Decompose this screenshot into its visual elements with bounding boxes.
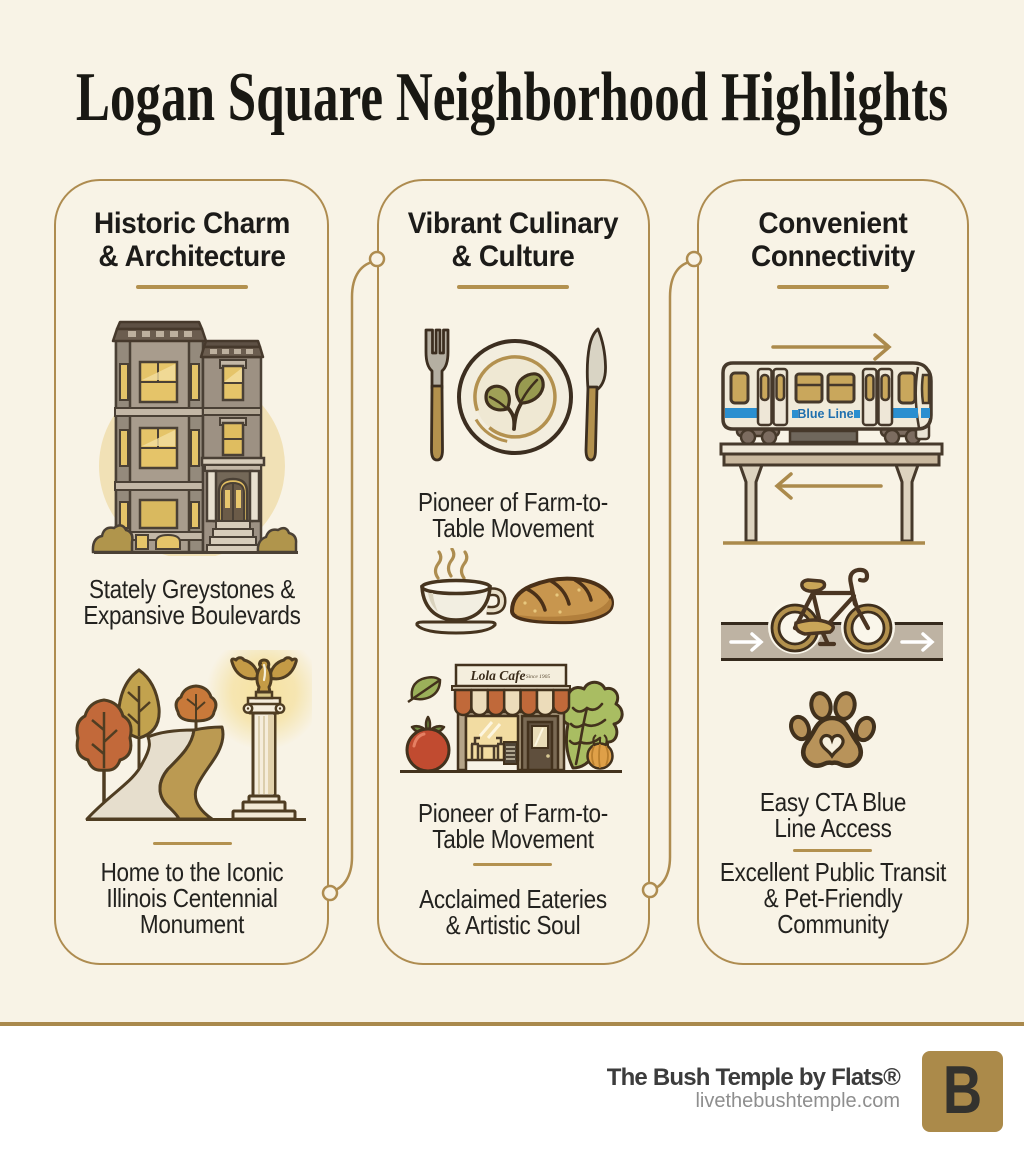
- svg-text:Lola Cafe: Lola Cafe: [469, 668, 525, 683]
- svg-text:Since 1905: Since 1905: [526, 674, 551, 680]
- svg-text:Blue Line: Blue Line: [797, 407, 853, 421]
